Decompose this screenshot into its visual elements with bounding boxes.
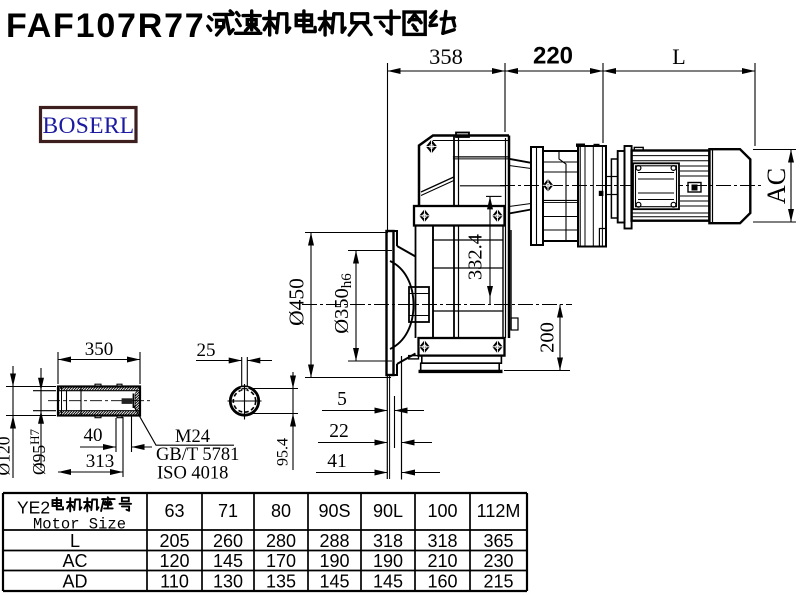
svg-text:332.4: 332.4 bbox=[465, 234, 487, 280]
svg-text:365: 365 bbox=[483, 531, 513, 551]
svg-text:145: 145 bbox=[373, 572, 403, 592]
svg-text:358: 358 bbox=[429, 44, 463, 69]
svg-text:FAF107R77: FAF107R77 bbox=[6, 7, 206, 45]
svg-text:318: 318 bbox=[373, 531, 403, 551]
svg-text:318: 318 bbox=[427, 531, 457, 551]
svg-text:90L: 90L bbox=[373, 501, 403, 521]
svg-text:M24: M24 bbox=[175, 427, 210, 447]
svg-text:5: 5 bbox=[337, 389, 347, 410]
svg-text:288: 288 bbox=[319, 531, 349, 551]
svg-text:40: 40 bbox=[84, 425, 103, 446]
svg-text:145: 145 bbox=[213, 551, 243, 571]
svg-text:80: 80 bbox=[271, 501, 291, 521]
svg-text:95.4: 95.4 bbox=[275, 438, 292, 466]
svg-text:220: 220 bbox=[533, 43, 573, 70]
svg-text:GB/T 5781: GB/T 5781 bbox=[156, 445, 239, 465]
svg-text:AC: AC bbox=[62, 551, 87, 571]
svg-text:90S: 90S bbox=[318, 501, 350, 521]
svg-text:190: 190 bbox=[373, 551, 403, 571]
svg-text:ISO 4018: ISO 4018 bbox=[157, 464, 228, 484]
svg-text:Ø120: Ø120 bbox=[0, 436, 14, 475]
svg-text:112M: 112M bbox=[477, 501, 521, 521]
svg-text:190: 190 bbox=[319, 551, 349, 571]
svg-text:YE2: YE2 bbox=[17, 498, 50, 518]
svg-text:280: 280 bbox=[266, 531, 296, 551]
svg-text:110: 110 bbox=[160, 572, 189, 592]
svg-text:22: 22 bbox=[329, 421, 349, 442]
svg-text:230: 230 bbox=[483, 551, 513, 571]
svg-text:BOSERL: BOSERL bbox=[43, 113, 135, 139]
svg-text:AC: AC bbox=[762, 168, 791, 204]
svg-text:215: 215 bbox=[483, 572, 513, 592]
svg-text:63: 63 bbox=[164, 501, 184, 521]
svg-text:135: 135 bbox=[266, 572, 296, 592]
svg-text:120: 120 bbox=[159, 551, 189, 571]
svg-text:350: 350 bbox=[85, 339, 114, 360]
svg-text:AD: AD bbox=[62, 572, 87, 592]
svg-text:Ø450: Ø450 bbox=[285, 278, 309, 326]
svg-text:71: 71 bbox=[218, 501, 238, 521]
svg-text:160: 160 bbox=[427, 572, 457, 592]
svg-text:260: 260 bbox=[213, 531, 243, 551]
svg-text:145: 145 bbox=[319, 572, 349, 592]
svg-text:L: L bbox=[672, 44, 685, 69]
svg-text:210: 210 bbox=[427, 551, 457, 571]
svg-text:205: 205 bbox=[159, 531, 189, 551]
svg-text:L: L bbox=[70, 531, 80, 551]
svg-text:100: 100 bbox=[427, 501, 457, 521]
svg-text:25: 25 bbox=[197, 340, 216, 361]
svg-text:313: 313 bbox=[86, 451, 115, 472]
svg-text:200: 200 bbox=[537, 322, 559, 353]
svg-text:41: 41 bbox=[327, 451, 347, 472]
svg-text:130: 130 bbox=[213, 572, 243, 592]
svg-text:170: 170 bbox=[266, 551, 296, 571]
